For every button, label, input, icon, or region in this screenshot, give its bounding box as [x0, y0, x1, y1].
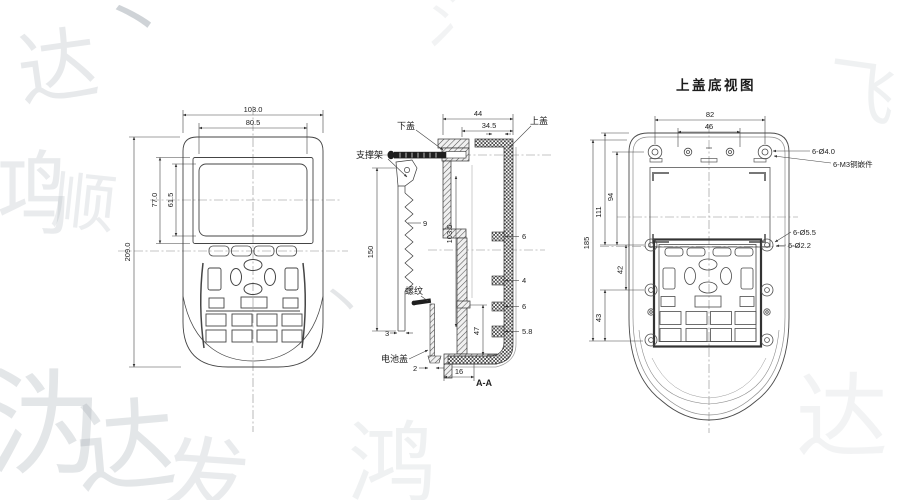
- dim-height-b: 94: [606, 193, 615, 201]
- dim-total-width: 103.0: [244, 105, 263, 114]
- screw-hole-slot: [446, 152, 466, 159]
- dim-height-d: 43: [594, 314, 603, 322]
- dim-inner-hole-span: 46: [705, 122, 713, 131]
- dim-section-top-width: 44: [474, 109, 482, 118]
- label-battery-cover: 电池盖: [381, 353, 408, 364]
- top-screw-bosses: [648, 145, 772, 159]
- dim-cover-thickness: 2: [413, 364, 417, 373]
- dim-tooth-pitch: 9: [423, 219, 427, 228]
- label-support-bracket: 支撑架: [356, 149, 383, 160]
- dim-total-height: 209.0: [123, 243, 132, 262]
- keypad-right-rib: [302, 263, 305, 348]
- set-screw: [412, 298, 432, 305]
- dim-lower-height: 47: [472, 327, 481, 335]
- top-cover-bosses: [492, 232, 504, 337]
- serrated-edge: [405, 193, 413, 291]
- section-aa-drawing: [366, 139, 553, 378]
- dpad-right-button: [265, 269, 276, 286]
- label-upper-cover: 上盖: [530, 115, 548, 126]
- label-section-aa: A-A: [476, 378, 492, 388]
- dim-boss-4: 5.8: [522, 327, 532, 336]
- dim-screen-width: 80.5: [246, 118, 261, 127]
- dim-height-c: 42: [616, 266, 625, 274]
- callout-insert-m3: 6-M3铜嵌件: [833, 159, 873, 169]
- battery-cover-section: [428, 304, 441, 363]
- fixing-screw: [388, 151, 447, 159]
- dim-section-top-overlap: 34.5: [482, 121, 497, 130]
- label-lower-cover: 下盖: [397, 120, 415, 131]
- callout-hole-d22: 6-Ø2.2: [788, 241, 811, 250]
- bottom-cover-section: [438, 139, 497, 378]
- dim-cover-total-height: 185: [582, 237, 591, 250]
- dpad-left-button: [231, 269, 242, 286]
- front-centerlines: [118, 106, 348, 432]
- front-view-drawing: [118, 106, 348, 432]
- dim-cavity-height: 103.5: [445, 225, 454, 244]
- dim-boss-2: 4: [522, 276, 526, 285]
- dim-bracket-height: 150: [366, 246, 375, 259]
- dim-boss-1: 6: [522, 232, 526, 241]
- top-cover-bottom-view-drawing: [600, 124, 800, 433]
- dim-boss-3: 6: [522, 302, 526, 311]
- dim-screen-inner-height: 61.5: [166, 193, 175, 208]
- view-title: 上盖底视图: [676, 77, 756, 93]
- dim-hole-span: 82: [706, 110, 714, 119]
- label-thread: 螺纹: [405, 285, 423, 296]
- dim-height-a: 111: [594, 206, 603, 217]
- dim-bracket-thickness: 3: [385, 329, 389, 338]
- drawing-canvas: 丶 达 鸿 顺 沩 达 发 鸿 丶 飞 达 氵: [0, 0, 900, 500]
- vent-slots: [650, 159, 766, 163]
- keypad-left-rib: [201, 263, 204, 348]
- bottom-view-dimensions: 82 46 185 111 94 42 43 6-Ø4.0: [582, 110, 873, 341]
- engineering-drawing-svg: 103.0 80.5 77.0 61.5 209.0: [0, 0, 900, 500]
- keypad-buttons: [206, 268, 302, 342]
- keypad-openings: [660, 248, 756, 342]
- callout-hole-d40: 6-Ø4.0: [812, 147, 835, 156]
- dim-bottom-width: 16: [455, 367, 463, 376]
- screen-opening: [650, 168, 770, 248]
- dim-screen-height: 77.0: [150, 193, 159, 208]
- callout-boss-d55: 6-Ø5.5: [793, 228, 816, 237]
